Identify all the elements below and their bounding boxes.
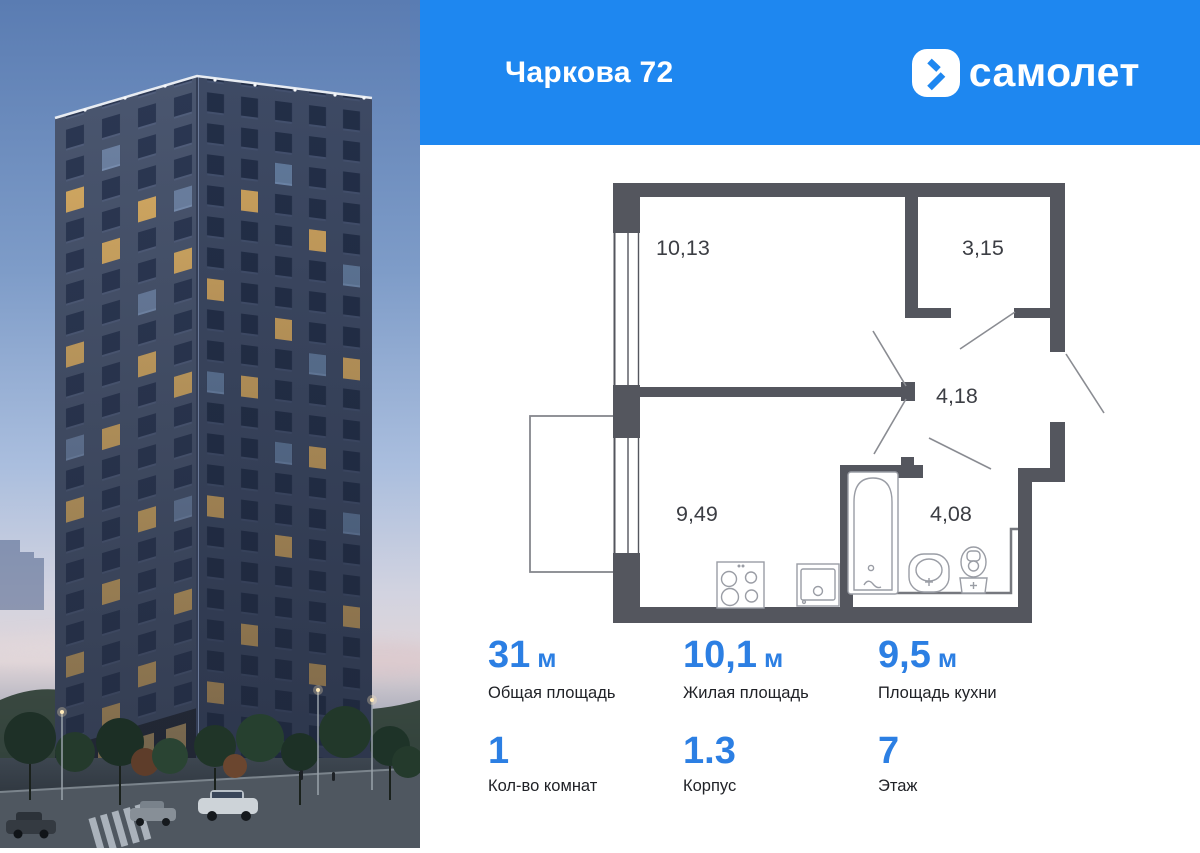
stat-rooms-count: 1 Кол-во комнат bbox=[488, 734, 597, 796]
stat-value: 1.3 bbox=[683, 734, 736, 768]
stat-unit: м bbox=[764, 643, 783, 673]
stat-building-number: 1.3 Корпус bbox=[683, 734, 736, 796]
stat-label: Этаж bbox=[878, 777, 917, 796]
building-render bbox=[0, 0, 420, 848]
stat-value: 7 bbox=[878, 734, 917, 768]
stat-label: Общая площадь bbox=[488, 684, 615, 703]
building-photo bbox=[0, 0, 420, 848]
stat-unit: м bbox=[537, 643, 556, 673]
stat-value: 1 bbox=[488, 734, 597, 768]
stat-floor: 7 Этаж bbox=[878, 734, 917, 796]
stats-panel: 31м Общая площадь 10,1м Жилая площадь 9,… bbox=[420, 0, 1200, 848]
stat-label: Корпус bbox=[683, 777, 736, 796]
stat-value: 31м bbox=[488, 638, 615, 675]
stat-kitchen-area: 9,5м Площадь кухни bbox=[878, 638, 997, 703]
stat-label: Жилая площадь bbox=[683, 684, 809, 703]
stat-value: 10,1м bbox=[683, 638, 809, 675]
stat-label: Кол-во комнат bbox=[488, 777, 597, 796]
stat-living-area: 10,1м Жилая площадь bbox=[683, 638, 809, 703]
stat-label: Площадь кухни bbox=[878, 684, 997, 703]
listing-card: Чаркова 72 самолет 31м Общая площадь 10,… bbox=[420, 0, 1200, 848]
stat-unit: м bbox=[938, 643, 957, 673]
stat-total-area: 31м Общая площадь bbox=[488, 638, 615, 703]
building-corner-edge bbox=[197, 76, 199, 812]
stat-value: 9,5м bbox=[878, 638, 997, 675]
